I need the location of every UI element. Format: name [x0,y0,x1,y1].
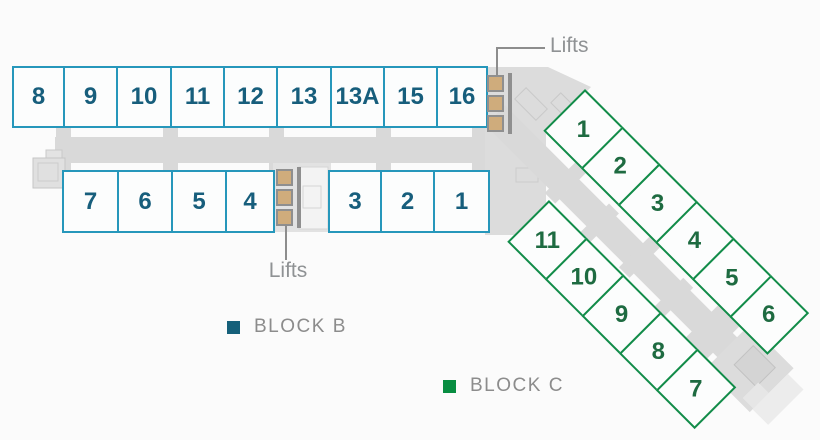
unit-number: 9 [84,85,97,109]
lift-icon [276,169,293,186]
unit-number: 7 [689,376,702,400]
unit-number: 8 [652,339,665,363]
lifts-top-stack [487,73,512,134]
unit-number: 15 [397,85,424,109]
lifts-label-bottom: Lifts [260,259,316,283]
unit-number: 8 [32,85,45,109]
unit-number: 9 [614,302,627,326]
unit-b-9[interactable]: 9 [63,66,118,128]
lifts-bottom-stack [276,167,301,228]
legend-block-b[interactable]: BLOCK B [227,316,347,338]
legend-block-c-label: BLOCK C [470,375,564,397]
block-c-swatch [443,380,456,393]
floorplan-stage: 891011121313A15167654321 1234561110987 L… [0,0,820,440]
unit-number: 13A [335,85,379,109]
unit-number: 16 [449,85,476,109]
block-b-swatch [227,321,240,334]
unit-number: 10 [131,85,158,109]
unit-b-2[interactable]: 2 [380,170,435,233]
unit-b-10[interactable]: 10 [116,66,172,128]
lift-icon [487,115,504,132]
unit-b-7[interactable]: 7 [62,170,119,233]
lifts-bottom-leader [285,224,287,260]
unit-b-1[interactable]: 1 [433,170,490,233]
unit-b-4[interactable]: 4 [225,170,275,233]
unit-b-8[interactable]: 8 [12,66,65,128]
unit-b-13[interactable]: 13 [276,66,332,128]
unit-number: 3 [650,191,663,215]
unit-number: 12 [237,85,264,109]
unit-b-5[interactable]: 5 [171,170,227,233]
unit-number: 11 [534,228,559,252]
unit-number: 11 [185,85,210,109]
legend-block-c[interactable]: BLOCK C [443,375,564,397]
unit-number: 2 [613,154,626,178]
unit-number: 6 [138,190,151,214]
unit-number: 13 [291,85,318,109]
unit-b-3[interactable]: 3 [328,170,382,233]
unit-b-6[interactable]: 6 [117,170,173,233]
unit-b-11[interactable]: 11 [170,66,225,128]
unit-number: 10 [571,265,598,289]
unit-b-12[interactable]: 12 [223,66,278,128]
unit-b-16[interactable]: 16 [436,66,488,128]
unit-number: 1 [455,190,468,214]
unit-number: 5 [192,190,205,214]
unit-number: 3 [348,190,361,214]
unit-number: 1 [576,117,589,141]
unit-number: 7 [84,190,97,214]
lift-icon [487,75,504,92]
lifts-label-top: Lifts [550,34,589,58]
lifts-top-leader-v [496,47,498,75]
lifts-top-leader-h [496,47,545,49]
legend-block-b-label: BLOCK B [254,316,347,338]
unit-b-15[interactable]: 15 [383,66,438,128]
lift-icon [276,189,293,206]
lift-icon [487,95,504,112]
unit-number: 2 [401,190,414,214]
unit-number: 5 [725,265,738,289]
unit-number: 6 [762,303,775,327]
unit-number: 4 [243,190,256,214]
unit-number: 4 [688,228,701,252]
unit-b-13A[interactable]: 13A [330,66,385,128]
